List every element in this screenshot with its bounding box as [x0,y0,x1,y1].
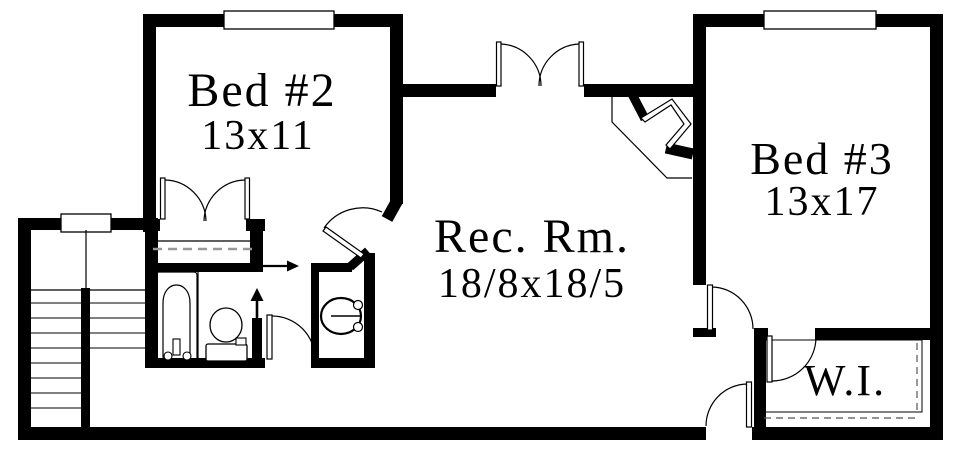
hall-angled-door [323,208,382,258]
wall-bed2-corner-bevel [387,201,397,219]
wall-right-exterior [930,14,943,440]
wall-vanity-top [311,263,352,272]
door-swing-arc [324,208,382,228]
bed2-closet-double-door [161,178,250,221]
door-leaf [641,99,691,149]
tub-handle-right [183,352,191,360]
toilet [206,308,247,361]
floor-plan-drawing: Bed #2 13x11 Rec. Rm. 18/8x18/5 Bed #3 1… [0,0,961,452]
wall-wi-top-a [754,328,768,340]
toilet-bowl [210,308,242,342]
floor-plan: Bed #2 13x11 Rec. Rm. 18/8x18/5 Bed #3 1… [0,0,961,452]
bed3-door [708,285,754,330]
recrm-double-door [497,42,584,86]
window-bed3 [764,11,876,29]
door-leaf [747,382,752,427]
wall-recrm-top-left [390,84,496,97]
wall-bottom-left [18,427,706,440]
toilet-handle [236,338,246,345]
door-swing-arc [272,316,315,359]
wall-toilet-stub [252,318,262,368]
bed2-dimensions: 13x11 [201,113,314,159]
room-labels: Bed #2 13x11 Rec. Rm. 18/8x18/5 Bed #3 1… [187,64,893,405]
door-swing-arc [165,180,206,221]
recrm-label: Rec. Rm. [434,210,630,263]
wall-stair-left [18,218,31,440]
door-leaf [245,178,250,219]
door-swing-arc [539,44,579,86]
wall-bed2-right [390,14,403,204]
wall-recrm-top-right [584,84,694,97]
windows [61,11,876,232]
bathtub [156,272,197,361]
door-leaf [161,178,166,219]
staircase [31,230,145,427]
bathroom-door [267,315,315,359]
wall-ne-diagonal-stub-upper [632,94,645,119]
recrm-dimensions: 18/8x18/5 [438,261,626,307]
door-swing-arc [706,384,747,426]
door-leaf [708,285,713,330]
door-swing-arc [712,287,753,329]
door-leaf [767,336,772,382]
hall-bottom-door [706,382,752,427]
tub-handle-left [164,352,172,360]
door-swing-arc [501,44,541,86]
tub-faucet [173,339,180,355]
bed2-label: Bed #2 [187,64,336,117]
wall-wi-top-b [815,328,930,340]
bed2-closet [153,241,255,249]
window-stairs [61,214,111,232]
stair-treads-right [90,303,145,348]
bed3-angled-door [612,96,692,178]
stair-treads-left [31,303,81,408]
wall-bottom-right [752,427,943,440]
wall-bed2-left [143,14,156,232]
wall-bath-top [145,263,263,272]
wall-vanity-right [364,253,375,368]
stair-center-stringer [81,288,90,427]
direction-up-arrow-icon [251,288,264,321]
vanity-sink [321,298,363,334]
bed3-label: Bed #3 [750,133,894,184]
sink-handle-top [354,301,363,310]
door-leaf [323,227,364,258]
door-swing-arc [204,180,245,221]
door-leaf [579,42,584,86]
door-leaf [497,42,502,86]
bed3-dimensions: 13x17 [765,179,880,225]
sink-handle-bottom [354,323,363,332]
door-leaf [267,315,272,359]
window-bed2 [224,11,334,29]
toilet-tank [206,344,247,361]
wi-label: W.I. [804,356,886,405]
wall-bed3-left [693,14,706,285]
